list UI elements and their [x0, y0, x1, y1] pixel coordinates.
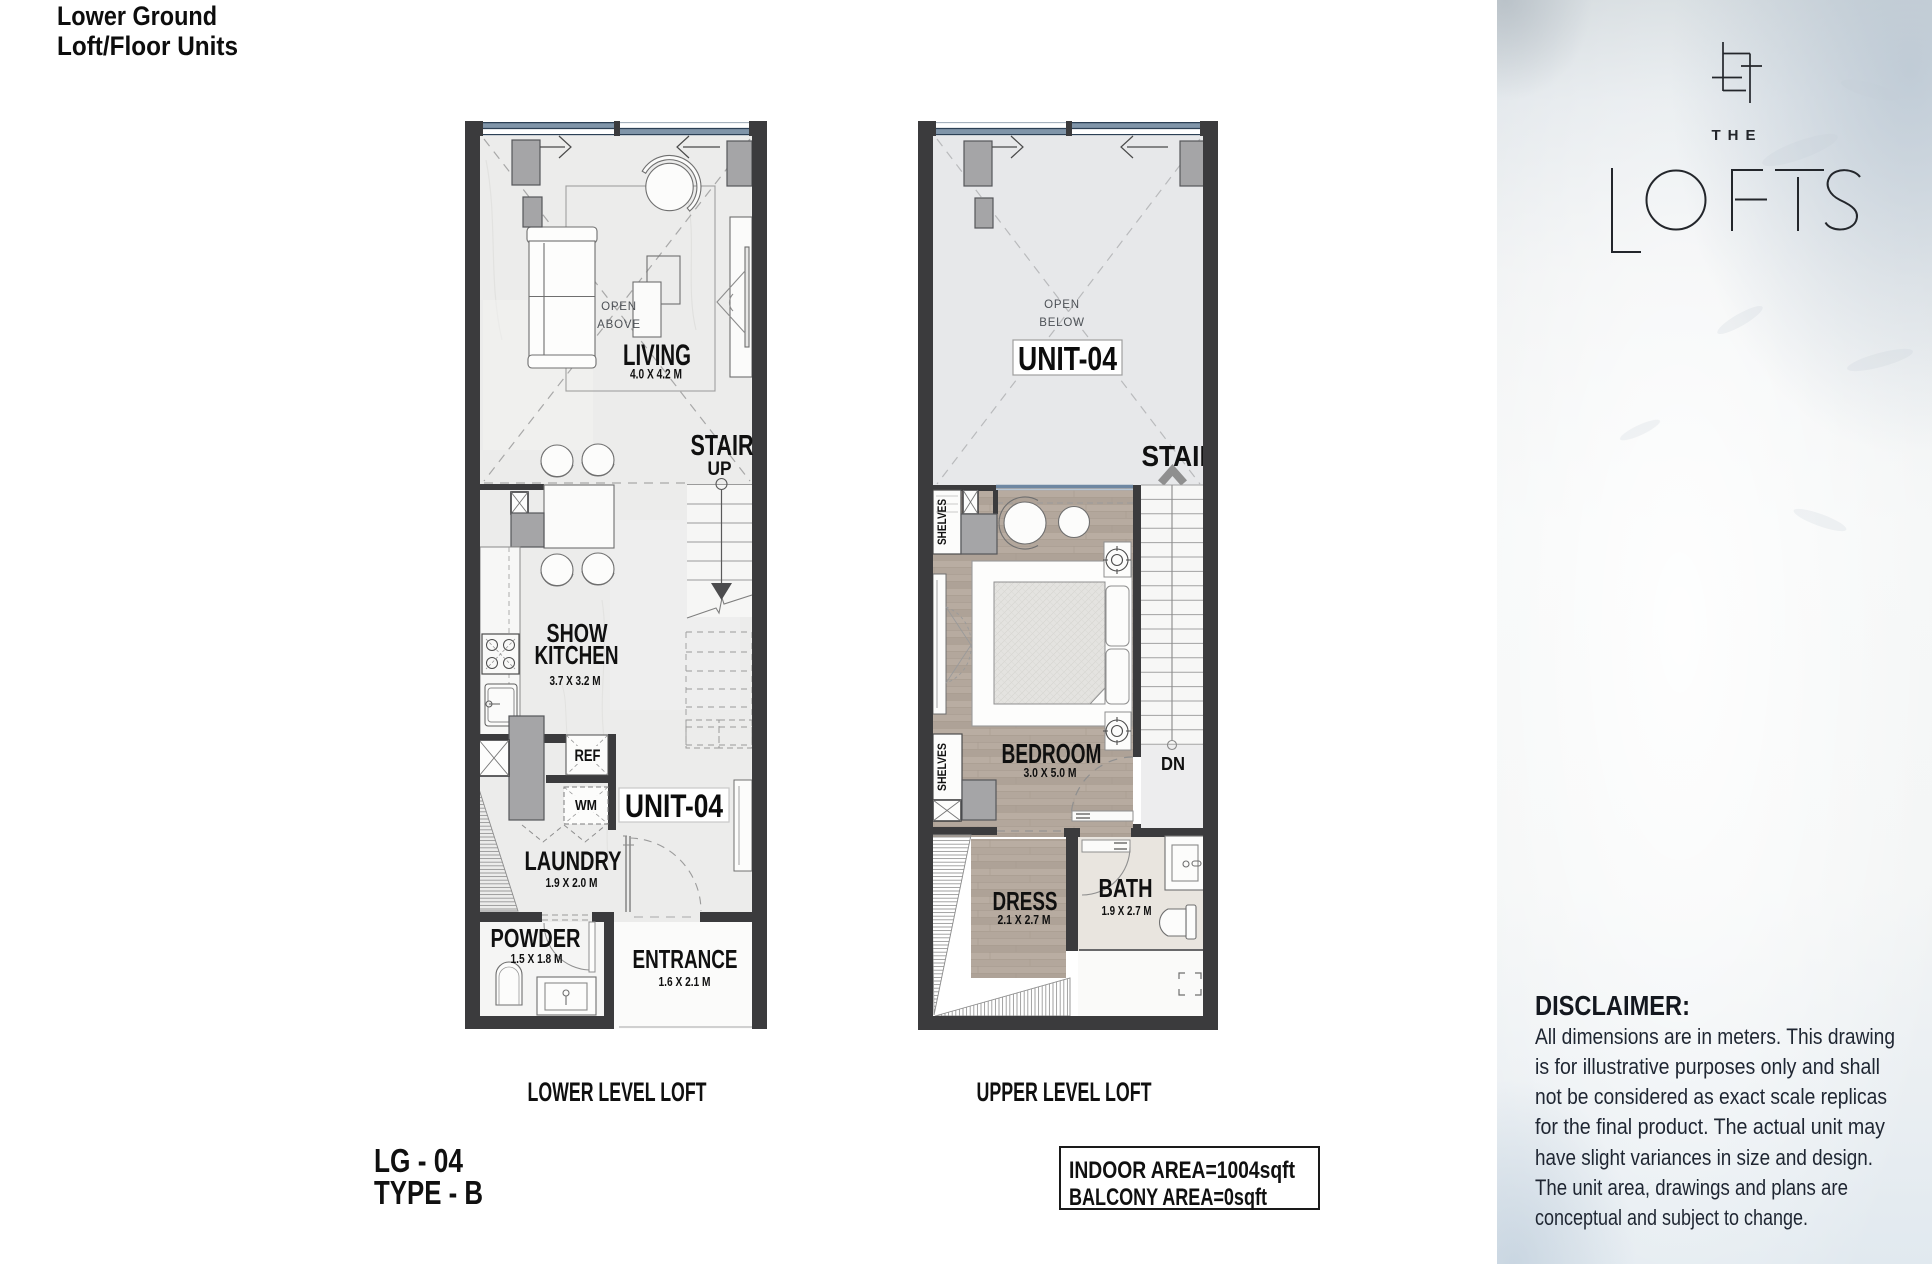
svg-text:BELOW: BELOW: [1039, 317, 1085, 329]
svg-text:for the final product. The act: for the final product. The actual unit m…: [1535, 1114, 1885, 1139]
svg-text:SHELVES: SHELVES: [937, 743, 949, 791]
svg-text:is for illustrative purposes o: is for illustrative purposes only and sh…: [1535, 1054, 1880, 1079]
svg-text:POWDER: POWDER: [491, 923, 581, 953]
svg-text:not be considered as exact sca: not be considered as exact scale replica…: [1535, 1084, 1887, 1109]
svg-text:Lower Ground: Lower Ground: [57, 1, 217, 31]
svg-text:3.7 X 3.2 M: 3.7 X 3.2 M: [550, 673, 601, 688]
svg-text:The unit area, drawings and pl: The unit area, drawings and plans are: [1535, 1175, 1848, 1200]
svg-text:1.9 X 2.0 M: 1.9 X 2.0 M: [546, 875, 598, 890]
svg-text:ENTRANCE: ENTRANCE: [633, 944, 738, 974]
svg-text:OPEN: OPEN: [601, 301, 637, 313]
svg-text:UNIT-04: UNIT-04: [625, 788, 723, 824]
svg-text:UPPER LEVEL LOFT: UPPER LEVEL LOFT: [977, 1077, 1152, 1107]
svg-text:1.6 X 2.1 M: 1.6 X 2.1 M: [659, 974, 711, 989]
svg-text:conceptual and subject to chan: conceptual and subject to change.: [1535, 1205, 1808, 1230]
svg-text:3.0 X 5.0 M: 3.0 X 5.0 M: [1024, 765, 1077, 780]
svg-text:DN: DN: [1161, 754, 1185, 774]
svg-text:2.1 X 2.7 M: 2.1 X 2.7 M: [998, 912, 1051, 927]
svg-text:have slight variances in size: have slight variances in size and design…: [1535, 1145, 1873, 1170]
svg-text:1.5 X 1.8 M: 1.5 X 1.8 M: [511, 951, 563, 966]
svg-text:KITCHEN: KITCHEN: [535, 640, 619, 670]
svg-text:TYPE - B: TYPE - B: [374, 1174, 483, 1211]
svg-text:Loft/Floor Units: Loft/Floor Units: [57, 31, 238, 61]
svg-text:THE: THE: [1712, 127, 1763, 144]
svg-text:BATH: BATH: [1099, 873, 1153, 903]
svg-text:INDOOR AREA=1004sqft: INDOOR AREA=1004sqft: [1069, 1157, 1295, 1184]
svg-text:UP: UP: [708, 459, 732, 480]
svg-text:4.0 X 4.2 M: 4.0 X 4.2 M: [630, 367, 682, 382]
svg-text:All dimensions are in meters.: All dimensions are in meters. This drawi…: [1535, 1024, 1895, 1049]
svg-text:DISCLAIMER:: DISCLAIMER:: [1535, 990, 1690, 1021]
svg-text:STAIR: STAIR: [691, 430, 754, 462]
svg-text:LOWER LEVEL LOFT: LOWER LEVEL LOFT: [528, 1077, 707, 1107]
svg-text:BALCONY AREA=0sqft: BALCONY AREA=0sqft: [1069, 1184, 1267, 1211]
svg-text:SHELVES: SHELVES: [937, 499, 949, 545]
svg-text:OPEN: OPEN: [1044, 299, 1080, 311]
svg-text:WM: WM: [575, 797, 597, 814]
svg-text:REF: REF: [575, 746, 601, 765]
svg-text:1.9 X 2.7 M: 1.9 X 2.7 M: [1102, 903, 1152, 918]
svg-text:LAUNDRY: LAUNDRY: [525, 846, 622, 876]
svg-text:UNIT-04: UNIT-04: [1018, 340, 1118, 377]
svg-text:ABOVE: ABOVE: [597, 319, 641, 331]
